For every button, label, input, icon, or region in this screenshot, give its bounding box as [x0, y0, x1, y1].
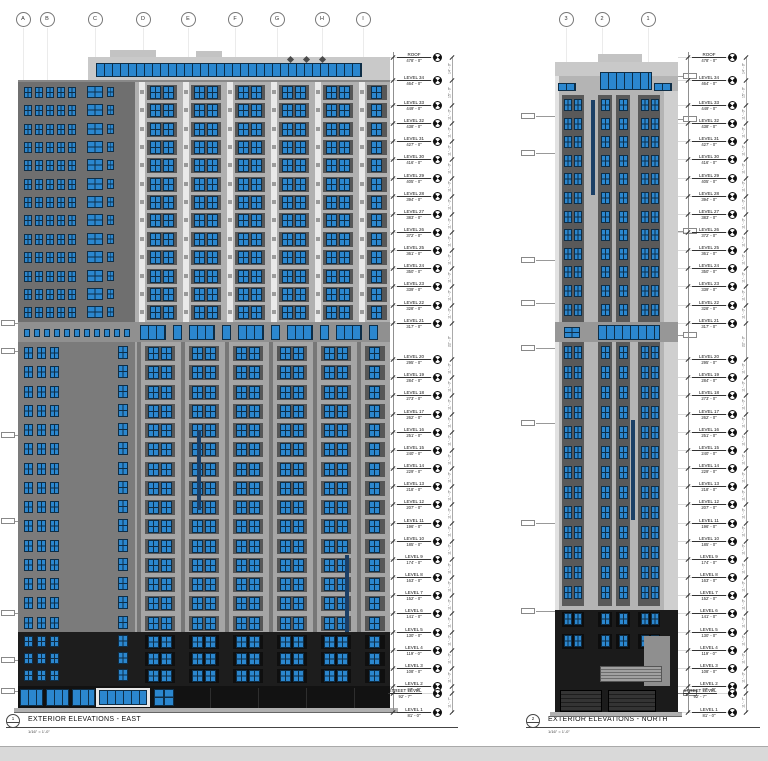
window [574, 211, 582, 223]
level-elevation: 108' - 0" [397, 669, 431, 674]
window [163, 141, 174, 154]
window [251, 123, 262, 136]
window [293, 405, 304, 418]
window [205, 617, 216, 630]
window [194, 86, 205, 99]
window [601, 155, 610, 167]
window [282, 196, 293, 209]
window [150, 251, 161, 264]
mullion-strip [181, 342, 185, 632]
window [24, 252, 32, 263]
window [46, 289, 54, 300]
window [601, 366, 610, 379]
level-elevation: 229' - 0" [397, 469, 431, 474]
window [118, 519, 128, 532]
balcony-dot [272, 255, 276, 259]
level-elevation: 372' - 0" [692, 233, 726, 238]
balcony-dot [272, 200, 276, 204]
keynote-leader [15, 323, 18, 324]
level-elevation: 416' - 0" [692, 160, 726, 165]
datum-target-icon [433, 155, 442, 164]
datum-target-icon [433, 464, 442, 473]
window [249, 540, 260, 553]
window [641, 211, 649, 223]
level-marker: LEVEL 22328' - 0" [692, 300, 726, 312]
balcony-dot [272, 90, 276, 94]
title-underline [526, 727, 760, 728]
window [280, 405, 291, 418]
datum-target-icon [728, 264, 737, 273]
window [601, 466, 610, 479]
window [601, 285, 610, 297]
window [24, 405, 33, 417]
level-marker: LEVEL 30416' - 0" [692, 154, 726, 166]
level-elevation: 350' - 0" [397, 269, 431, 274]
window [293, 520, 304, 533]
window [46, 689, 69, 706]
level-elevation: 119' - 0" [692, 651, 726, 656]
window [641, 99, 649, 111]
window [57, 105, 65, 116]
window [295, 251, 306, 264]
window [161, 670, 172, 682]
window [148, 670, 159, 682]
window [118, 652, 128, 664]
window [24, 160, 32, 171]
window [339, 306, 350, 319]
window [205, 386, 216, 399]
window [20, 689, 43, 706]
window [50, 443, 59, 455]
window [24, 87, 32, 98]
level-elevation: 207' - 0" [692, 505, 726, 510]
level-elevation: 328' - 0" [692, 306, 726, 311]
window [236, 482, 247, 495]
window [194, 104, 205, 117]
window [574, 386, 582, 399]
window [46, 215, 54, 226]
window [249, 386, 260, 399]
window [24, 559, 33, 571]
window [118, 346, 128, 359]
window [371, 251, 382, 264]
window [68, 252, 76, 263]
window [651, 99, 659, 111]
window [574, 566, 582, 579]
window [371, 306, 382, 319]
window [371, 178, 382, 191]
window [369, 386, 380, 399]
window [50, 636, 59, 647]
window [564, 635, 572, 647]
balcony-dot [184, 90, 188, 94]
level-marker: LEVEL 28394' - 0" [692, 191, 726, 203]
window [238, 288, 249, 301]
datum-target-icon [433, 519, 442, 528]
balcony-dot [316, 127, 320, 131]
balcony-dot [316, 292, 320, 296]
window [574, 248, 582, 260]
window [161, 443, 172, 456]
window [236, 540, 247, 553]
window [148, 482, 159, 495]
window [150, 123, 161, 136]
window [651, 486, 659, 499]
window [295, 214, 306, 227]
balcony-dot [228, 90, 232, 94]
window [148, 578, 159, 591]
balcony-dot [140, 292, 144, 296]
window [35, 160, 43, 171]
level-marker: LEVEL 181' - 0" [397, 707, 431, 719]
window [114, 329, 120, 337]
window [574, 426, 582, 439]
datum-target-icon [433, 410, 442, 419]
window [574, 526, 582, 539]
datum-target-icon [433, 373, 442, 382]
window [57, 307, 65, 318]
balcony-dot [360, 237, 364, 241]
window [249, 520, 260, 533]
balcony-dot [316, 108, 320, 112]
window [161, 424, 172, 437]
window [50, 347, 59, 359]
window [107, 160, 114, 170]
window [371, 214, 382, 227]
window [320, 325, 329, 340]
balcony-dot [228, 274, 232, 278]
window [293, 559, 304, 572]
window [96, 63, 362, 77]
level-elevation: 81' - 0" [397, 713, 431, 718]
floor-dimension: 14' - 0" [742, 57, 747, 81]
window [161, 386, 172, 399]
window [601, 546, 610, 559]
grid-bubble: 3 [559, 12, 574, 27]
window [280, 617, 291, 630]
level-marker: LEVEL 3108' - 0" [397, 663, 431, 675]
level-marker: LEVEL 9174' - 0" [397, 554, 431, 566]
window [24, 142, 32, 153]
keynote-leader [678, 76, 683, 77]
window [651, 546, 659, 559]
level-elevation: 152' - 0" [692, 596, 726, 601]
window [222, 325, 231, 340]
window [107, 234, 114, 244]
window [574, 613, 582, 625]
window [57, 160, 65, 171]
window [601, 248, 610, 260]
window [205, 559, 216, 572]
window [118, 539, 128, 552]
datum-target-icon [728, 210, 737, 219]
level-elevation: 240' - 0" [397, 451, 431, 456]
balcony-dot [228, 255, 232, 259]
elevation-sheet: THE M ARK 1 EXTERIOR ELEVATIONS - EAST 1… [0, 0, 768, 761]
balcony-dot [140, 182, 144, 186]
level-marker: LEVEL 29405' - 0" [397, 173, 431, 185]
window [236, 463, 247, 476]
window [324, 653, 335, 665]
window [326, 233, 337, 246]
window [236, 578, 247, 591]
level-elevation: 394' - 0" [692, 197, 726, 202]
window [371, 86, 382, 99]
window [280, 597, 291, 610]
window [326, 159, 337, 172]
window [249, 366, 260, 379]
level-marker: LEVEL 4119' - 0" [692, 645, 726, 657]
window [601, 635, 610, 647]
window [192, 405, 203, 418]
window [194, 141, 205, 154]
datum-target-icon [433, 76, 442, 85]
balcony-dot [272, 145, 276, 149]
window [654, 83, 672, 91]
level-marker: LEVEL 21317' - 0" [692, 318, 726, 330]
keynote-leader [536, 260, 555, 261]
level-marker: LEVEL 12207' - 0" [692, 499, 726, 511]
window [564, 386, 572, 399]
window [619, 386, 628, 399]
window [564, 248, 572, 260]
balcony-dot [360, 218, 364, 222]
datum-target-icon [728, 482, 737, 491]
window [194, 306, 205, 319]
window [154, 689, 174, 706]
north-drawing-tag: 2 [526, 714, 540, 728]
window [205, 597, 216, 610]
window [50, 653, 59, 664]
window [238, 233, 249, 246]
datum-target-icon [433, 137, 442, 146]
level-marker: LEVEL 3108' - 0" [692, 663, 726, 675]
window [238, 196, 249, 209]
window [236, 424, 247, 437]
window [192, 597, 203, 610]
window [641, 229, 649, 241]
window [326, 178, 337, 191]
window [337, 443, 348, 456]
window [337, 501, 348, 514]
window [24, 271, 32, 282]
datum-target-icon [433, 664, 442, 673]
level-elevation: 317' - 0" [397, 324, 431, 329]
window [161, 578, 172, 591]
balcony-dot [228, 163, 232, 167]
window [118, 577, 128, 590]
level-elevation: 119' - 0" [397, 651, 431, 656]
window [339, 104, 350, 117]
datum-target-icon [728, 391, 737, 400]
keynote-tag [1, 432, 15, 438]
window [369, 463, 380, 476]
level-elevation: 284' - 0" [692, 378, 726, 383]
window [619, 635, 628, 647]
balcony-dot [316, 90, 320, 94]
window [24, 386, 33, 398]
window [339, 288, 350, 301]
window [35, 142, 43, 153]
level-marker: LEVEL 29405' - 0" [692, 173, 726, 185]
window [37, 386, 46, 398]
window [337, 653, 348, 665]
window [619, 366, 628, 379]
window [238, 141, 249, 154]
window [68, 160, 76, 171]
window [369, 424, 380, 437]
window [163, 233, 174, 246]
window [161, 520, 172, 533]
window [107, 289, 114, 299]
level-marker: LEVEL 17262' - 0" [397, 409, 431, 421]
datum-target-icon [433, 53, 442, 62]
level-marker: LEVEL 26372' - 0" [692, 227, 726, 239]
window [46, 142, 54, 153]
level-marker: LEVEL 32438' - 0" [692, 118, 726, 130]
window [295, 288, 306, 301]
window [601, 173, 610, 185]
keynote-tag [521, 257, 535, 263]
datum-target-icon [728, 537, 737, 546]
window [293, 463, 304, 476]
window [574, 173, 582, 185]
window [641, 506, 649, 519]
window [651, 446, 659, 459]
level-elevation: 273' - 0" [397, 396, 431, 401]
window [339, 141, 350, 154]
level-marker: LEVEL 19284' - 0" [692, 372, 726, 384]
level-marker: LEVEL 25361' - 0" [692, 245, 726, 257]
datum-target-icon [433, 537, 442, 546]
window [282, 306, 293, 319]
window [57, 289, 65, 300]
window [173, 325, 182, 340]
window [641, 136, 649, 148]
window [205, 463, 216, 476]
window [207, 104, 218, 117]
datum-target-icon [433, 301, 442, 310]
level-marker: LEVEL 33449' - 0" [692, 100, 726, 112]
level-marker: LEVEL 17262' - 0" [692, 409, 726, 421]
window [601, 346, 610, 359]
balcony-dot [316, 310, 320, 314]
window [337, 366, 348, 379]
floor-dimension: 22' - 0" [742, 329, 747, 353]
window [107, 252, 114, 262]
level-elevation: 141' - 0" [397, 614, 431, 619]
balcony-dot [360, 163, 364, 167]
keynote-leader [15, 613, 18, 614]
window [150, 178, 161, 191]
level-elevation: 196' - 0" [692, 524, 726, 529]
window [24, 347, 33, 359]
window [87, 214, 103, 226]
east-title-block: 1 EXTERIOR ELEVATIONS - EAST 1/16" = 1'-… [6, 714, 458, 740]
window [280, 347, 291, 360]
window [37, 424, 46, 436]
datum-target-icon [728, 76, 737, 85]
window [150, 288, 161, 301]
window [24, 197, 32, 208]
window [163, 251, 174, 264]
datum-target-icon [728, 53, 737, 62]
window [150, 270, 161, 283]
window [651, 266, 659, 278]
window [87, 288, 103, 300]
window [601, 136, 610, 148]
window [293, 636, 304, 648]
window [295, 306, 306, 319]
balcony-dot [140, 218, 144, 222]
window [249, 636, 260, 648]
level-marker: LEVEL 31427' - 0" [692, 136, 726, 148]
window [574, 155, 582, 167]
window [280, 443, 291, 456]
sheet-bottom-band [0, 746, 768, 761]
window [651, 466, 659, 479]
level-marker: LEVEL 26372' - 0" [397, 227, 431, 239]
window [619, 304, 628, 316]
level-elevation: 405' - 0" [397, 179, 431, 184]
window [192, 540, 203, 553]
balcony-dot [228, 145, 232, 149]
datum-target-icon [433, 609, 442, 618]
window [641, 366, 649, 379]
window [371, 270, 382, 283]
window [238, 123, 249, 136]
rooftop-box [196, 51, 222, 57]
window [140, 325, 166, 340]
level-marker: LEVEL 23339' - 0" [692, 281, 726, 293]
window [205, 424, 216, 437]
level-elevation: 295' - 0" [397, 360, 431, 365]
datum-target-icon [728, 573, 737, 582]
window [205, 653, 216, 665]
window [194, 196, 205, 209]
window [24, 670, 33, 681]
balcony-dot [360, 200, 364, 204]
window [651, 229, 659, 241]
window [57, 179, 65, 190]
window [339, 270, 350, 283]
window [369, 636, 380, 648]
window [564, 266, 572, 278]
window [371, 141, 382, 154]
window [251, 86, 262, 99]
window [324, 540, 335, 553]
datum-target-icon [728, 428, 737, 437]
window [324, 405, 335, 418]
balcony-dot [272, 163, 276, 167]
window [236, 405, 247, 418]
window [293, 670, 304, 682]
window [35, 234, 43, 245]
level-marker: LEVEL 27383' - 0" [692, 209, 726, 221]
grid-bubble: 1 [641, 12, 656, 27]
window [574, 586, 582, 599]
window [35, 252, 43, 263]
level-elevation: 350' - 0" [692, 269, 726, 274]
window [148, 463, 159, 476]
window [574, 192, 582, 204]
louver-band [600, 666, 662, 682]
window [24, 540, 33, 552]
window [87, 270, 103, 282]
keynote-tag [521, 520, 535, 526]
window [282, 288, 293, 301]
window [68, 179, 76, 190]
